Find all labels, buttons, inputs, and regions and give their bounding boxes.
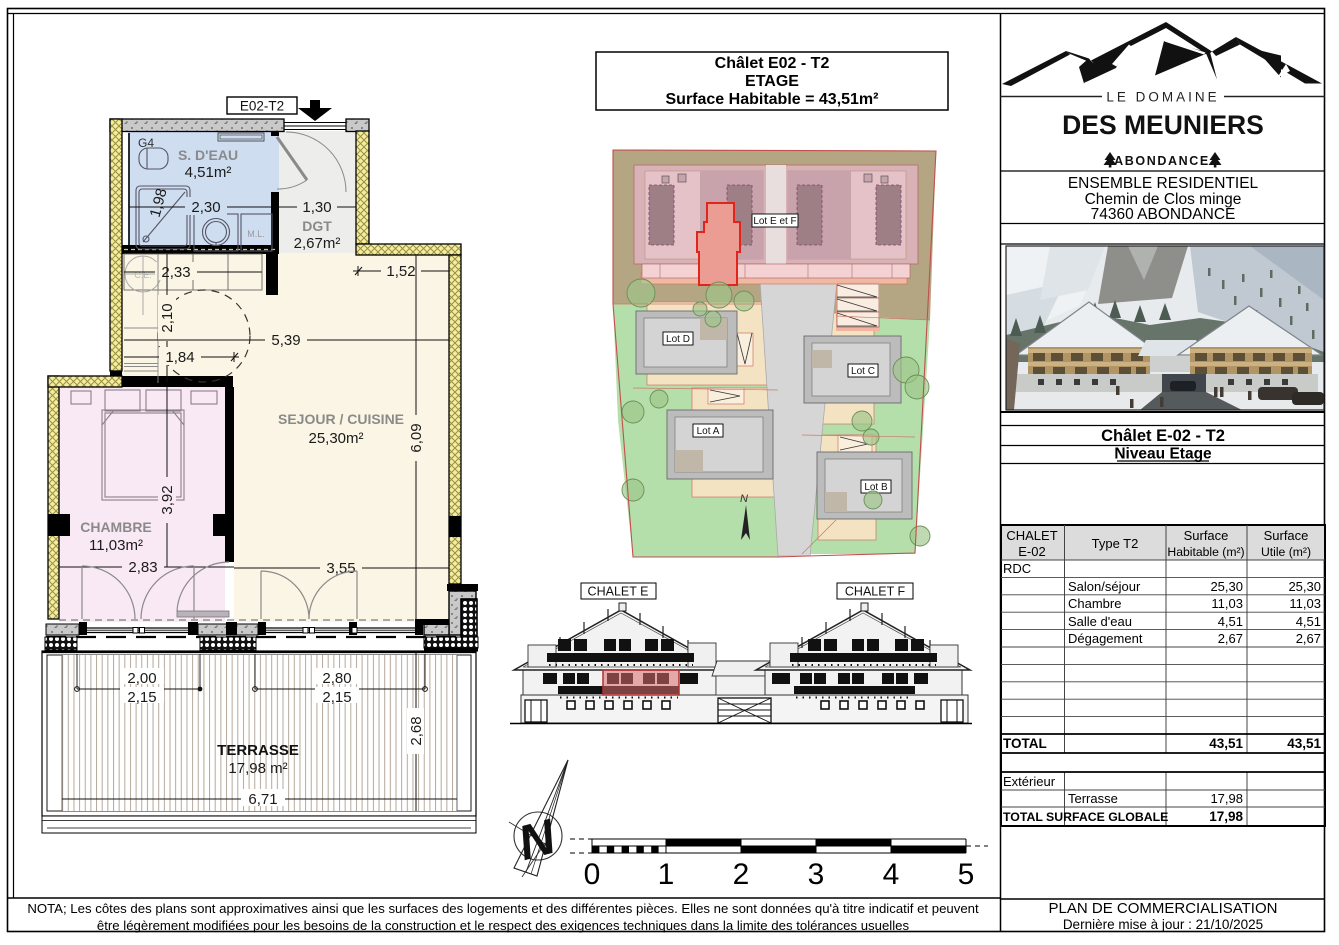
svg-text:RDC: RDC	[1003, 561, 1031, 576]
svg-text:11,03m²: 11,03m²	[89, 537, 143, 554]
svg-text:Lot A: Lot A	[697, 426, 720, 437]
svg-text:3,92: 3,92	[159, 485, 176, 514]
svg-text:2,15: 2,15	[322, 689, 351, 706]
svg-text:Utile (m²): Utile (m²)	[1261, 545, 1311, 559]
svg-text:Lot E et F: Lot E et F	[753, 216, 796, 227]
svg-text:17,98: 17,98	[1210, 791, 1243, 806]
svg-text:ENSEMBLE RESIDENTIEL: ENSEMBLE RESIDENTIEL	[1068, 175, 1259, 192]
svg-text:1,52: 1,52	[386, 263, 415, 280]
svg-text:2,15: 2,15	[127, 689, 156, 706]
svg-text:Dégagement: Dégagement	[1068, 631, 1143, 646]
svg-text:Salon/séjour: Salon/séjour	[1068, 579, 1141, 594]
svg-text:2,00: 2,00	[127, 670, 156, 687]
svg-text:4,51: 4,51	[1218, 614, 1243, 629]
svg-text:1,84: 1,84	[165, 349, 194, 366]
svg-text:43,51: 43,51	[1209, 736, 1243, 751]
svg-text:SEJOUR / CUISINE: SEJOUR / CUISINE	[278, 411, 404, 427]
svg-text:4: 4	[883, 858, 900, 891]
svg-text:4,51m²: 4,51m²	[185, 164, 232, 181]
svg-text:Châlet E02 - T2: Châlet E02 - T2	[715, 55, 830, 72]
svg-text:Surface: Surface	[1184, 528, 1229, 543]
svg-text:Niveau Etage: Niveau Etage	[1114, 446, 1212, 463]
svg-text:TOTAL SURFACE GLOBALE: TOTAL SURFACE GLOBALE	[1003, 810, 1168, 824]
svg-text:Type T2: Type T2	[1092, 536, 1139, 551]
svg-text:2,30: 2,30	[191, 199, 220, 216]
svg-text:M.L.: M.L.	[247, 229, 265, 239]
svg-text:TOTAL: TOTAL	[1003, 736, 1047, 751]
svg-text:NOTA; Les côtes des plans sont: NOTA; Les côtes des plans sont approxima…	[27, 901, 979, 916]
svg-text:2,67: 2,67	[1296, 631, 1321, 646]
svg-text:CHALET: CHALET	[1006, 528, 1057, 543]
svg-text:TERRASSE: TERRASSE	[217, 742, 299, 759]
svg-text:Dernière mise à jour : 21/10/2: Dernière mise à jour : 21/10/2025	[1063, 917, 1263, 932]
svg-text:11,03: 11,03	[1289, 596, 1321, 611]
svg-text:Surface Habitable = 43,51m²: Surface Habitable = 43,51m²	[666, 91, 879, 108]
svg-text:2,68: 2,68	[408, 716, 425, 745]
svg-text:5,39: 5,39	[271, 332, 300, 349]
svg-text:2: 2	[733, 858, 750, 891]
svg-text:6,71: 6,71	[248, 791, 277, 808]
svg-text:1,30: 1,30	[302, 199, 331, 216]
svg-text:5: 5	[958, 858, 975, 891]
svg-text:être légèrement modifiées pour: être légèrement modifiées pour les besoi…	[97, 918, 910, 933]
svg-text:G4: G4	[138, 136, 154, 150]
svg-text:Terrasse: Terrasse	[1068, 791, 1118, 806]
svg-text:0: 0	[584, 858, 601, 891]
svg-text:17,98: 17,98	[1209, 809, 1243, 824]
svg-text:Extérieur: Extérieur	[1003, 774, 1056, 789]
svg-text:Lot D: Lot D	[666, 334, 690, 345]
svg-text:CHAMBRE: CHAMBRE	[80, 519, 152, 535]
svg-text:Lot C: Lot C	[851, 366, 875, 377]
svg-text:17,98 m²: 17,98 m²	[228, 760, 287, 777]
svg-text:3,55: 3,55	[326, 560, 355, 577]
svg-text:N: N	[740, 493, 748, 505]
svg-text:Habitable (m²): Habitable (m²)	[1167, 545, 1244, 559]
svg-text:CHALET F: CHALET F	[845, 585, 906, 599]
svg-text:2,83: 2,83	[128, 559, 157, 576]
svg-text:CHALET E: CHALET E	[588, 585, 649, 599]
svg-text:25,30m²: 25,30m²	[308, 430, 363, 447]
svg-text:1: 1	[658, 858, 675, 891]
svg-text:Salle d'eau: Salle d'eau	[1068, 614, 1132, 629]
svg-text:25,30: 25,30	[1210, 579, 1243, 594]
svg-text:2,67m²: 2,67m²	[294, 235, 341, 252]
svg-text:Châlet E-02 - T2: Châlet E-02 - T2	[1101, 427, 1225, 445]
svg-text:2,67: 2,67	[1218, 631, 1243, 646]
svg-text:6,09: 6,09	[408, 423, 425, 452]
svg-text:43,51: 43,51	[1287, 736, 1321, 751]
svg-text:DGT: DGT	[302, 218, 332, 234]
svg-text:4,51: 4,51	[1296, 614, 1321, 629]
svg-text:11,03: 11,03	[1211, 596, 1243, 611]
svg-text:Chambre: Chambre	[1068, 596, 1121, 611]
svg-text:S. D'EAU: S. D'EAU	[178, 147, 238, 163]
svg-text:ABONDANCE: ABONDANCE	[1114, 154, 1210, 168]
svg-text:25,30: 25,30	[1288, 579, 1321, 594]
svg-text:PLAN DE COMMERCIALISATION: PLAN DE COMMERCIALISATION	[1049, 900, 1278, 917]
svg-text:Surface: Surface	[1264, 528, 1309, 543]
svg-text:LE DOMAINE: LE DOMAINE	[1106, 90, 1219, 105]
svg-text:74360 ABONDANCE: 74360 ABONDANCE	[1091, 206, 1236, 223]
svg-text:2,80: 2,80	[322, 670, 351, 687]
svg-text:2,10: 2,10	[159, 303, 176, 332]
svg-text:ETAGE: ETAGE	[745, 73, 799, 90]
svg-text:E02-T2: E02-T2	[240, 99, 284, 114]
svg-text:E-02: E-02	[1018, 544, 1045, 559]
svg-text:3: 3	[808, 858, 825, 891]
svg-text:2,33: 2,33	[161, 264, 190, 281]
svg-text:DES MEUNIERS: DES MEUNIERS	[1062, 110, 1264, 140]
